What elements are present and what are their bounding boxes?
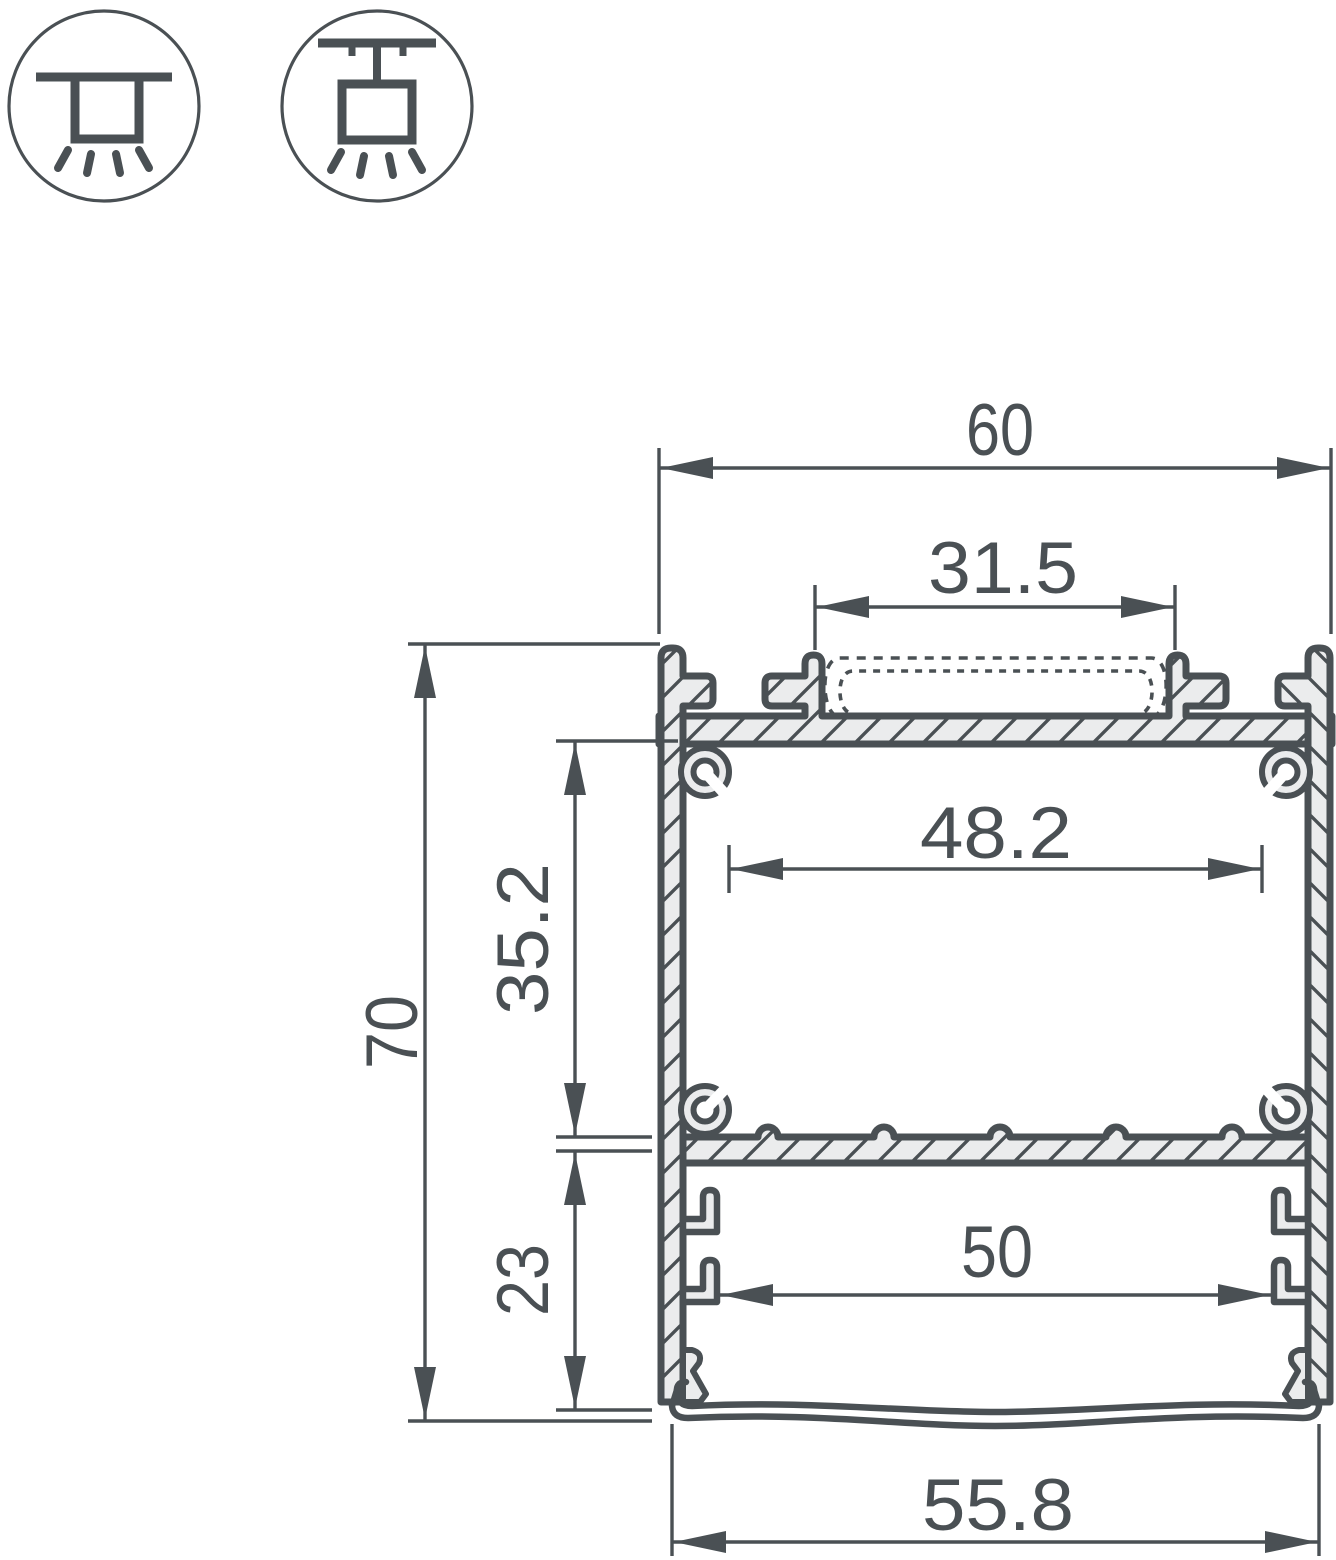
dim-lower-chamber-height: 23 (483, 1151, 652, 1410)
dim-label-lower-chamber-height: 23 (483, 1244, 564, 1316)
dim-label-upper-chamber-height: 35.2 (483, 863, 564, 1015)
diffuser-top-edge (677, 1382, 1314, 1412)
dim-label-overall-width: 60 (966, 390, 1034, 471)
dim-lower-inner-width: 50 (719, 1212, 1272, 1306)
mid-plate (681, 1127, 1310, 1163)
drawing-canvas: 60 31.5 48.2 35.2 70 (0, 0, 1336, 1560)
dimensions: 60 31.5 48.2 35.2 70 (352, 390, 1331, 1556)
dim-inner-width: 48.2 (729, 793, 1262, 893)
profile-box (342, 84, 412, 140)
dim-label-inner-width: 48.2 (920, 793, 1072, 874)
technical-drawing-page: 60 31.5 48.2 35.2 70 (0, 0, 1336, 1560)
diffuser (672, 1382, 1319, 1426)
icon-circle (9, 11, 199, 201)
dim-label-lower-inner-width: 50 (961, 1212, 1033, 1293)
mount-icons (9, 11, 472, 201)
pendant-mount-icon (282, 11, 472, 201)
light-rays (58, 150, 149, 173)
light-rays (331, 152, 422, 175)
dim-label-slot-width: 31.5 (928, 528, 1078, 609)
surface-mount-icon (9, 11, 199, 201)
led-cover-dashed-outline (825, 658, 1166, 716)
diffuser-bottom-edge (672, 1390, 1319, 1426)
profile-cross-section (659, 648, 1332, 1426)
dim-label-diffuser-width: 55.8 (922, 1465, 1074, 1546)
dim-upper-chamber-height: 35.2 (483, 741, 678, 1137)
dim-label-overall-height: 70 (352, 995, 433, 1069)
profile-box (75, 77, 139, 139)
top-mounting-plate (659, 655, 1332, 744)
dim-diffuser-width: 55.8 (672, 1424, 1319, 1556)
bottom-feet (683, 1350, 1308, 1402)
dim-slot-width: 31.5 (815, 528, 1175, 650)
